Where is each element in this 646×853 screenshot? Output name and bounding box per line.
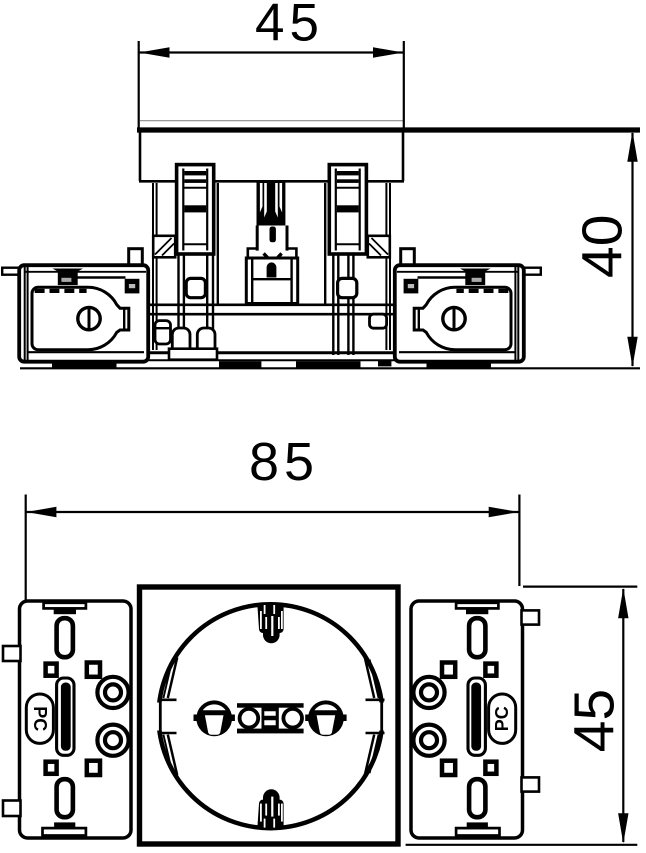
- svg-text:40: 40: [571, 215, 635, 278]
- svg-text:PC: PC: [30, 706, 50, 731]
- svg-text:85: 85: [249, 432, 319, 492]
- svg-text:45: 45: [255, 0, 324, 53]
- svg-text:45: 45: [563, 689, 627, 752]
- svg-text:PC: PC: [492, 706, 512, 731]
